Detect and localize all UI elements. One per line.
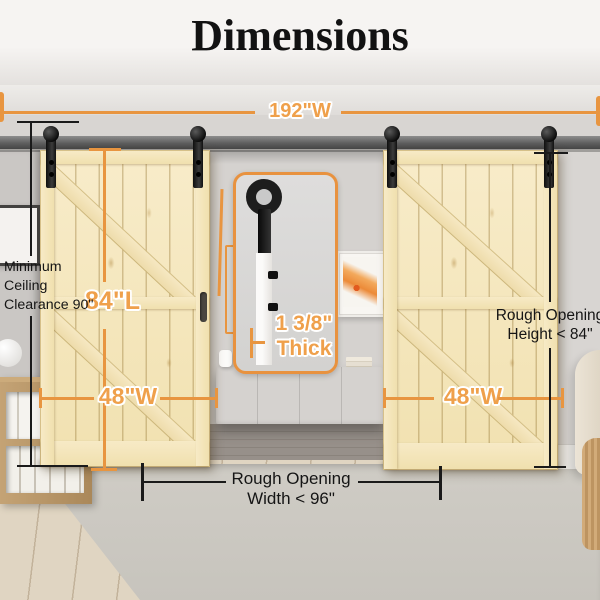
ro-height-line2: Height < 84" — [488, 325, 600, 344]
vase — [219, 350, 232, 367]
door-hanger — [387, 126, 397, 188]
left-door-width-tick-right — [215, 388, 218, 408]
throw-fringe — [582, 438, 600, 550]
left-door-width-line-a — [42, 397, 94, 400]
ro-width-line-b — [358, 481, 439, 483]
track-width-label: 192"W — [240, 100, 360, 123]
roller-strap-hardware — [258, 209, 271, 255]
rough-opening-height-label: Rough Opening Height < 84" — [488, 306, 600, 344]
ceiling-clearance-line2: Ceiling — [4, 277, 134, 296]
rough-opening-width-label: Rough Opening Width < 96" — [228, 469, 354, 508]
ceiling-clearance-label: Minimum Ceiling Clearance 90" — [4, 258, 134, 315]
ro-width-line1: Rough Opening — [228, 469, 354, 489]
thickness-word-label: Thick — [262, 337, 346, 361]
wall-art-print — [343, 257, 377, 307]
ro-height-cap-top — [534, 152, 568, 154]
right-door-width-tick-right — [561, 388, 564, 408]
ro-width-line-a — [144, 481, 226, 483]
door-rail-top — [384, 151, 557, 164]
edge-bolt — [268, 271, 278, 279]
ceiling-clearance-line3: Clearance 90" — [4, 296, 134, 315]
ro-height-cap-bottom — [534, 466, 566, 468]
door-length-cap-bottom — [91, 468, 117, 471]
wall-frame-left — [0, 205, 40, 266]
ceiling-clearance-line-upper — [30, 123, 32, 256]
door-hanger — [46, 126, 56, 188]
ro-height-line-upper — [549, 154, 551, 302]
thickness-value-label: 1 3/8" — [262, 312, 346, 336]
books-stack — [346, 357, 372, 367]
right-door-width-line-b — [498, 397, 561, 400]
left-door-width-line-b — [160, 397, 215, 400]
door-rail-bottom — [384, 443, 557, 469]
track-width-end-cap-left — [0, 92, 4, 122]
credenza — [216, 367, 384, 424]
header-band: Dimensions — [0, 0, 600, 85]
door-hanger — [193, 126, 203, 188]
wall-art — [337, 251, 387, 317]
ceiling-clearance-line-lower — [30, 316, 32, 465]
track-width-line-right — [341, 111, 600, 114]
track-width-line-left — [0, 111, 255, 114]
ro-height-line1: Rough Opening — [488, 306, 600, 325]
ro-width-line2: Width < 96" — [228, 489, 354, 509]
left-door-width-label: 48"W — [88, 383, 168, 410]
ro-width-tick-right — [439, 466, 442, 500]
edge-bolt — [268, 303, 278, 311]
right-door-width-line-a — [386, 397, 434, 400]
doorway-header-shadow — [205, 150, 386, 164]
ro-height-line-lower — [549, 348, 551, 466]
door-rail-bottom — [41, 441, 209, 466]
left-door-handle — [200, 292, 207, 322]
door-stile-left — [384, 151, 397, 469]
page-title: Dimensions — [0, 10, 600, 61]
ceiling-clearance-cap-bottom — [17, 465, 88, 467]
ceiling-clearance-line1: Minimum — [4, 258, 134, 277]
door-rail-top — [41, 151, 209, 164]
ceiling-clearance-cap-top — [17, 121, 79, 123]
barn-door-dimensions-diagram: 1 3/8" Thick 192"W 84"L 48"W 48"W Minimu… — [0, 0, 600, 600]
